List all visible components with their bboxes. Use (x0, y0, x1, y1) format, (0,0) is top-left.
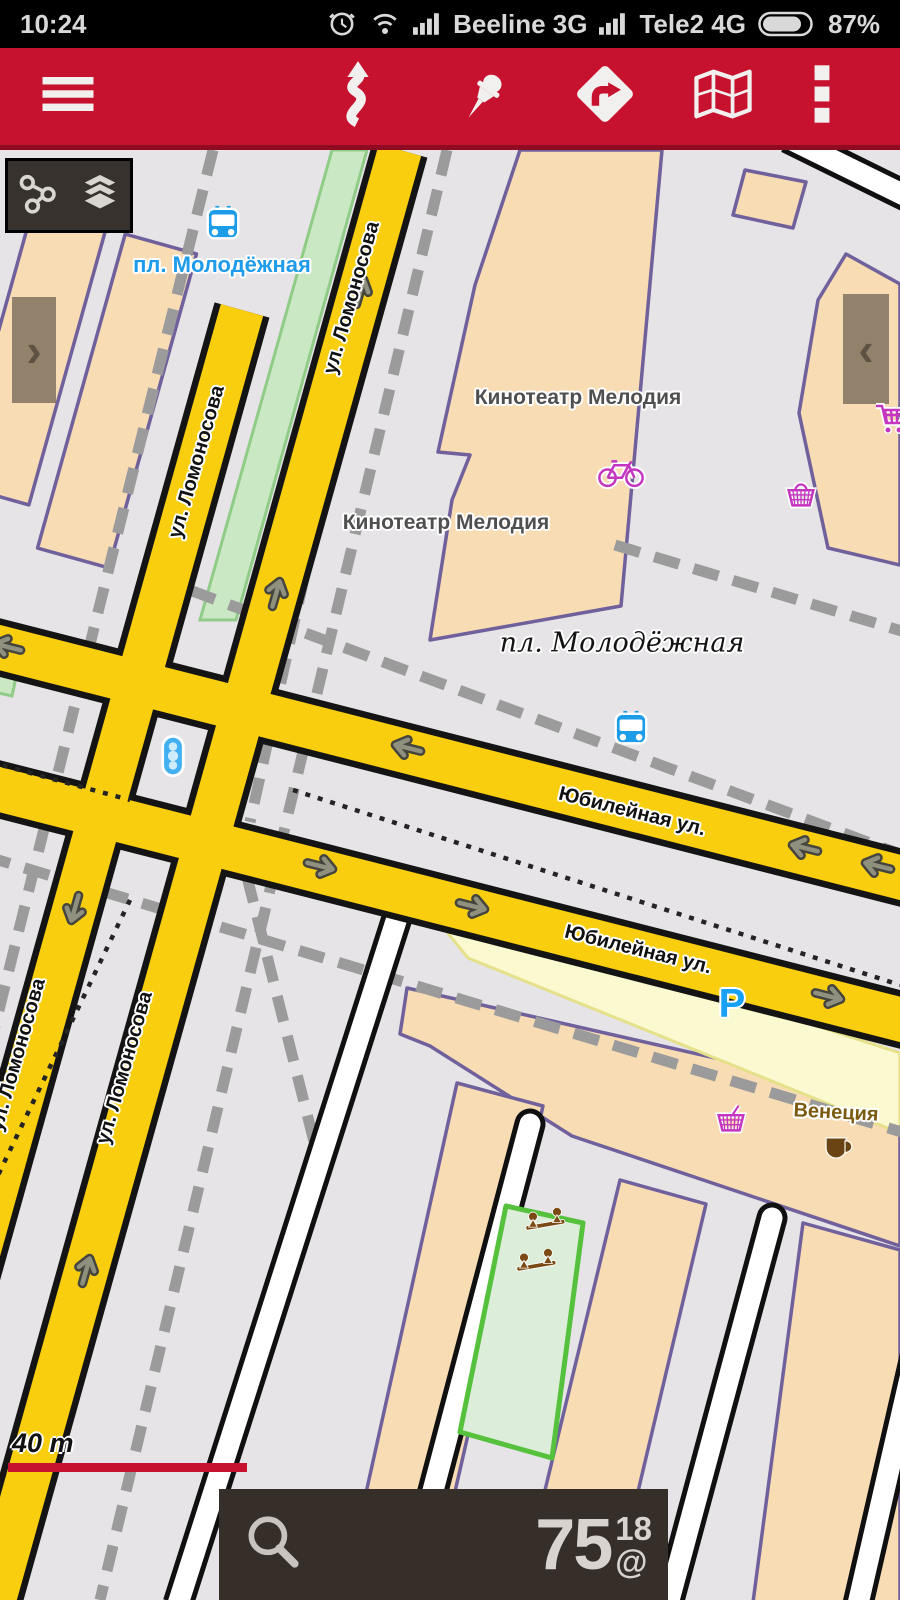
app-toolbar (0, 48, 900, 150)
map-canvas (0, 150, 900, 1600)
search-icon[interactable] (241, 1511, 303, 1578)
signal-icon-1 (413, 11, 441, 37)
hamburger-icon (34, 60, 102, 133)
map-icon (689, 60, 757, 133)
traffic-light-icon (158, 732, 188, 785)
status-bar: 10:24 Beeline 3G Tele2 4G 87% (0, 0, 900, 48)
carrier-2-label: Tele2 4G (639, 9, 745, 40)
alarm-icon (327, 9, 357, 39)
chevron-left-icon: ‹ (858, 322, 873, 376)
right-panel-handle[interactable]: ‹ (843, 294, 889, 404)
pin-button[interactable] (449, 61, 521, 133)
directions-button[interactable] (322, 61, 394, 133)
overflow-icon (788, 60, 856, 133)
clock-label: 10:24 (20, 9, 87, 40)
carrier-1-label: Beeline 3G (453, 9, 587, 40)
bus-stop-label: пл. Молодёжная (133, 252, 311, 278)
battery-label: 87% (828, 9, 880, 40)
bus-stop-icon[interactable] (610, 709, 652, 756)
cinema-label: Кинотеатр Мелодия (343, 511, 550, 535)
turn-right-icon (571, 60, 639, 133)
bus-stop-icon[interactable] (202, 204, 244, 251)
scale-label: 40 m (12, 1428, 74, 1459)
menu-button[interactable] (32, 61, 104, 133)
zoom-value: 75 (535, 1509, 611, 1581)
overflow-menu-button[interactable] (786, 61, 858, 133)
navigation-button[interactable] (569, 61, 641, 133)
search-zoom-widget[interactable]: 75 18 @ (219, 1489, 668, 1600)
map-surface[interactable]: › ‹ пл. Мо (0, 150, 900, 1600)
shop-basket-icon (712, 1101, 750, 1142)
map-controls-box (5, 158, 133, 233)
zoom-sup: 18 (615, 1512, 652, 1545)
playground-icon (512, 1249, 560, 1284)
cinema-label: Кинотеатр Мелодия (475, 386, 682, 410)
scale-bar (8, 1463, 247, 1472)
parking-label: P (719, 982, 746, 1027)
playground-icon (521, 1208, 569, 1243)
left-panel-handle[interactable]: › (12, 297, 56, 403)
map-style-button[interactable] (687, 61, 759, 133)
zoom-sub: @ (615, 1545, 647, 1578)
battery-icon (758, 10, 816, 38)
pushpin-icon (451, 60, 519, 133)
square-label: пл. Молодёжная (500, 628, 745, 659)
signal-icon-2 (599, 11, 627, 37)
chevron-right-icon: › (26, 323, 41, 377)
wifi-icon (369, 9, 401, 39)
phone-screen: 10:24 Beeline 3G Tele2 4G 87% (0, 0, 900, 1600)
shop-basket-icon (782, 476, 820, 517)
shop-cart-icon (871, 399, 900, 444)
layers-button[interactable] (74, 167, 126, 224)
route-icon (324, 60, 392, 133)
cafe-label: Венеция (793, 1099, 879, 1126)
bicycle-icon (596, 453, 646, 494)
coffee-cup-icon (819, 1131, 857, 1170)
track-button[interactable] (13, 167, 65, 224)
